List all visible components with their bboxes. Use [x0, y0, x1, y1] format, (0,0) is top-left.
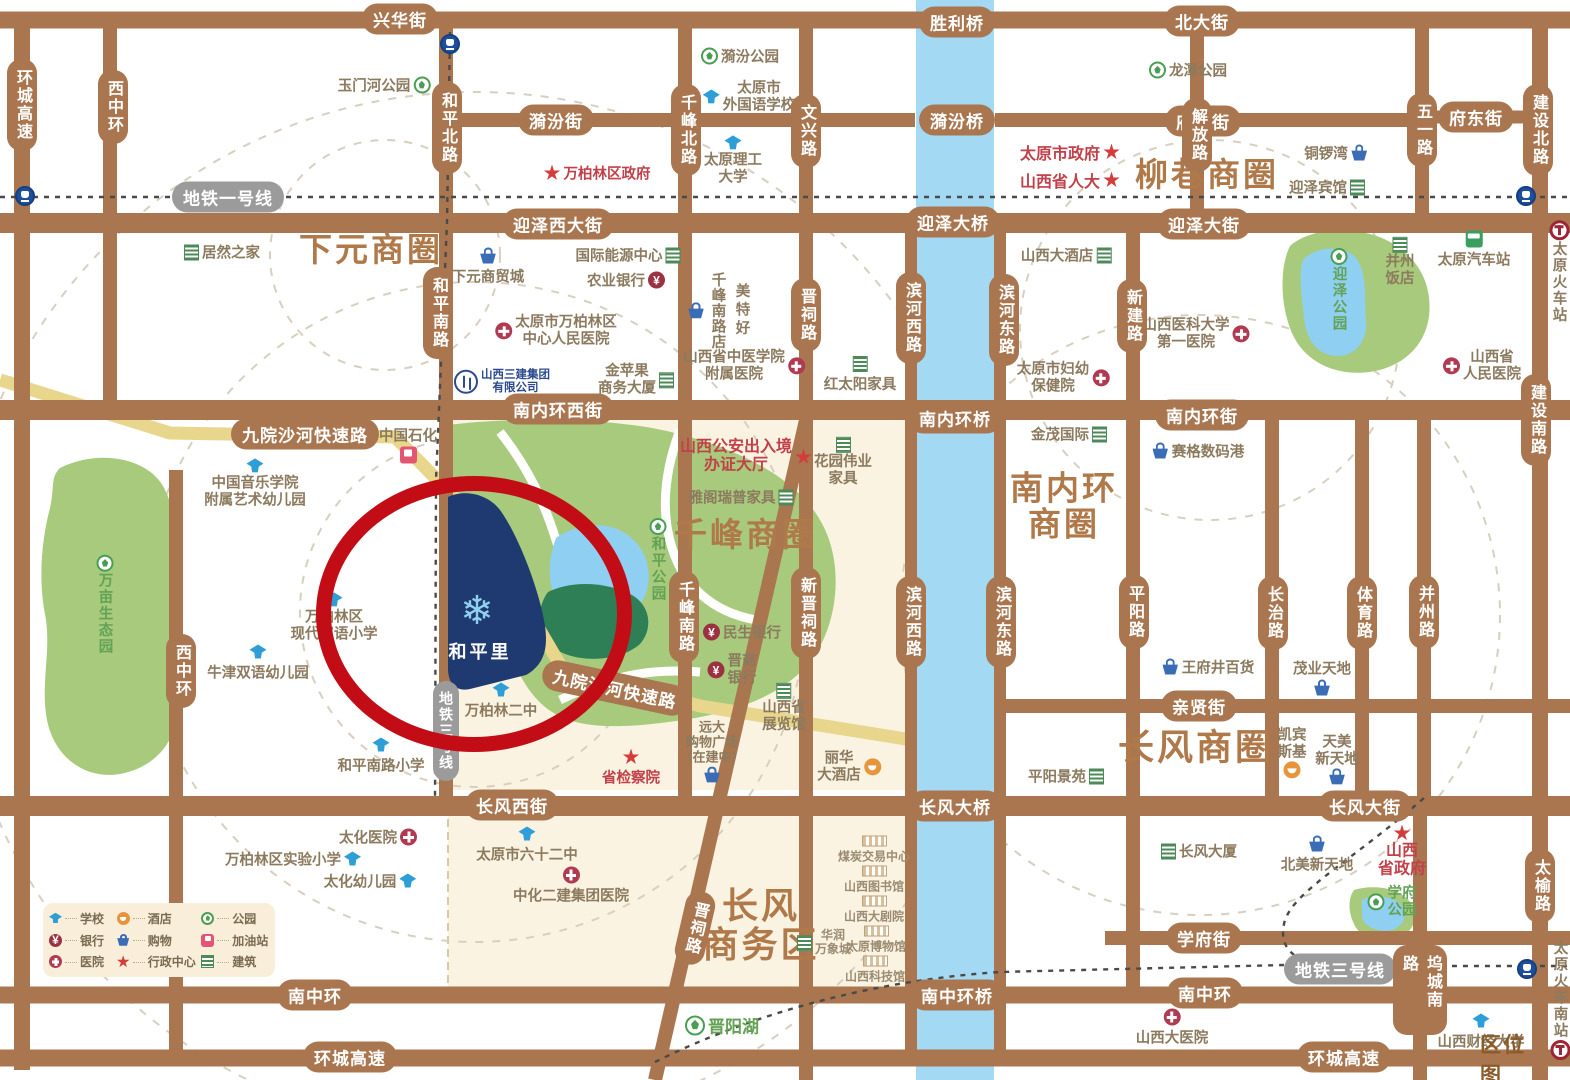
poi-label: 民生银行 — [723, 622, 781, 643]
road-label-beidajie: 北大街 — [1164, 6, 1240, 37]
poi-shanxi-science-museum: 山西科技馆 — [845, 956, 905, 985]
poi-sinopec: 中国石化 — [379, 425, 437, 464]
legend-dots — [65, 917, 77, 919]
poi-yingze-park: 迎泽公园 — [1329, 248, 1350, 332]
poi-label: 漪汾公园 — [721, 46, 779, 67]
poi-label: 金茂国际 — [1031, 424, 1089, 445]
poi-taiyuan-museum: 太原博物馆 — [846, 926, 906, 955]
poi-xuefu-park: 学府公园 — [1368, 885, 1417, 918]
poi-shanxi-sanjian: 山西三建集团有限公司 — [454, 369, 550, 395]
poi-wanbailin-exp-primary: 万柏林区实验小学 — [225, 849, 361, 870]
poi-shanxi-library: 山西图书馆 — [844, 866, 904, 895]
poi-jinshang-bank: 晋商银行 — [708, 653, 757, 686]
poi-label-line2: 家具 — [829, 471, 858, 487]
admin-star-icon — [623, 749, 640, 766]
poi-label: 山西大酒店 — [1021, 245, 1094, 266]
poi-label-line2: 现代双语小学 — [291, 626, 378, 642]
poi-jinyang-lake: 晋阳湖 — [685, 1013, 759, 1038]
poi-label-line2: 省政府 — [1378, 861, 1426, 878]
poi-label-line1: 山西省 — [1470, 349, 1514, 365]
admin-star-icon — [544, 165, 561, 182]
poi-abc-bank: 农业银行 — [587, 270, 665, 291]
poi-label-branch: 千峰南路店 — [708, 272, 729, 350]
poi-huayuan-furniture: 花园伟业家具 — [814, 437, 872, 487]
poi-label-line2: 附属医院 — [705, 366, 763, 382]
metro-line3-label-west: 地铁三号线 — [433, 681, 459, 781]
legend-item-bank: 银行 — [49, 932, 117, 949]
building-sketch-icon — [861, 896, 886, 907]
building-icon — [184, 244, 199, 260]
sanjian-logo-icon — [454, 370, 478, 394]
park-icon — [97, 555, 114, 572]
legend-dots — [133, 939, 145, 941]
road-label-qianfengbei: 千峰北路 — [671, 84, 701, 176]
building-icon — [659, 372, 674, 388]
building-icon — [1089, 768, 1104, 784]
poi-label-line1: 学府 — [1388, 885, 1417, 901]
poi-label: 太化幼儿园 — [324, 871, 397, 892]
poi-label-line2: 附属艺术幼儿园 — [204, 492, 306, 508]
fenhe-river — [916, 0, 994, 1080]
poi-taiyuan-bus-station: 太原汽车站 — [1438, 231, 1511, 270]
poi-tianmei-newworld: 天美新天地 — [1315, 734, 1359, 785]
poi-yifen-park: 漪汾公园 — [701, 46, 779, 67]
road-label-taiyu: 太榆路 — [1525, 849, 1555, 923]
poi-label: 山西大医院 — [1136, 1027, 1209, 1048]
park-icon — [413, 77, 430, 94]
poi-seg-digital-mall: 赛格数码港 — [1152, 441, 1245, 462]
bank-icon — [49, 934, 62, 947]
poi-wanbailin-government: 万柏林区政府 — [544, 163, 651, 184]
road-label-jiefang: 解放路 — [1182, 98, 1212, 172]
admin-star-icon — [117, 955, 130, 968]
school-icon — [344, 851, 361, 868]
hotel-icon — [117, 912, 130, 925]
metro-station-icon — [1516, 186, 1536, 206]
poi-taihua-hospital: 太化医院 — [339, 827, 417, 848]
poi-label: 玉门河公园 — [338, 75, 411, 96]
poi-taihua-kindergarten: 太化幼儿园 — [324, 871, 417, 892]
legend-item-shop: 购物 — [117, 932, 202, 949]
poi-label: 山西科技馆 — [845, 968, 905, 985]
poi-label: 太原火车南站 — [1550, 940, 1570, 1039]
poi-label-line1: 天美 — [1323, 734, 1352, 750]
poi-shanxi-dayiyuan: 山西大医院 — [1136, 1009, 1209, 1048]
building-sketch-icon — [861, 866, 886, 877]
legend-label: 公园 — [232, 910, 256, 927]
school-icon — [493, 682, 510, 699]
poi-label: 中化二建集团医院 — [513, 885, 629, 906]
hotel-icon — [1284, 762, 1301, 779]
railway-icon — [1549, 220, 1569, 240]
poi-label-brand: 美特好 — [732, 283, 753, 339]
poi-maoye-tiandi: 茂业天地 — [1293, 658, 1351, 697]
school-icon — [1473, 1013, 1490, 1030]
poi-label-line2: 商务大厦 — [598, 380, 656, 396]
poi-jinmao-international: 金茂国际 — [1031, 424, 1107, 445]
map-root: 兴华街 胜利桥 北大街 漪汾街 漪汾桥 府西街 府东街 迎泽西大街 迎泽大桥 迎… — [0, 0, 1570, 1080]
poi-label: 太化医院 — [339, 827, 397, 848]
poi-shanxi-exhibition-hall: 山西省展览馆 — [762, 683, 806, 733]
school-icon — [399, 873, 416, 890]
poi-label: 省检察院 — [602, 767, 660, 788]
park-icon — [1331, 248, 1348, 265]
road-label-ring-expwy-sw: 环城高速 — [303, 1042, 397, 1073]
poi-label-line3: （在建中） — [679, 749, 744, 764]
road-label-xinghua: 兴华街 — [362, 4, 438, 35]
shopping-icon — [1329, 769, 1346, 786]
shopping-icon — [1162, 659, 1179, 676]
poi-zhonghua-hospital: 中化二建集团医院 — [513, 867, 629, 906]
poi-label-line1: 山西医科大学 — [1143, 317, 1230, 333]
poi-bingzhou-hotel: 并州饭店 — [1386, 237, 1415, 287]
poi-label-line1: 晋商 — [728, 653, 757, 669]
building-icon — [1161, 843, 1176, 859]
poi-wangfujing: 王府井百货 — [1162, 657, 1255, 678]
shopping-icon — [1351, 145, 1368, 162]
road-label-xizhonghuan-n: 西中环 — [98, 70, 128, 144]
poi-label: 万柏林区实验小学 — [225, 849, 341, 870]
shopping-icon — [1152, 443, 1169, 460]
legend-dots — [65, 939, 77, 941]
building-sketch-icon — [862, 956, 887, 967]
bank-icon — [703, 624, 720, 641]
road-label-qinxian-st: 亲贤街 — [1161, 691, 1237, 722]
metro-line1-label: 地铁一号线 — [172, 182, 284, 213]
poi-yage-furniture: 雅阁瑞普家具 — [689, 487, 794, 508]
poi-yumenhe-park: 玉门河公园 — [338, 75, 431, 96]
school-icon — [519, 826, 536, 843]
poi-kempinski: 凯宾斯基 — [1278, 727, 1307, 778]
road-label-pingyang: 平阳路 — [1119, 575, 1149, 649]
hospital-icon — [1164, 1009, 1181, 1026]
poi-music-kindergarten: 中国音乐学院附属艺术幼儿园 — [204, 457, 306, 508]
legend-label: 学校 — [80, 910, 104, 927]
poi-label: 万柏林二中 — [465, 700, 538, 721]
road-label-yingze-west: 迎泽西大街 — [502, 209, 614, 240]
poi-shanxi-grand-hotel: 山西大酒店 — [1021, 245, 1112, 266]
building-icon — [836, 437, 851, 453]
road-label-changfeng-bridge: 长风大桥 — [908, 791, 1002, 822]
gas-station-icon — [400, 447, 417, 464]
poi-central-peoples-hospital: 太原市万柏林区中心人民医院 — [495, 314, 617, 347]
park-icon — [1149, 62, 1166, 79]
legend-item-gas: 加油站 — [201, 932, 269, 949]
road-label-hepingbei: 和平北路 — [432, 82, 462, 174]
poi-label-line1: 山西省中医学院 — [683, 349, 785, 365]
poi-changfeng-tower: 长风大厦 — [1161, 841, 1237, 862]
poi-longtan-park: 龙潭公园 — [1149, 60, 1227, 81]
road-label-xinjinci: 新晋祠路 — [791, 567, 821, 659]
school-icon — [247, 457, 264, 474]
poi-exit-entry-hall: 山西公安出入境办证大厅 — [680, 439, 812, 476]
poi-label: 农业银行 — [587, 270, 645, 291]
road-label-tiyu: 体育路 — [1347, 576, 1377, 650]
poi-label: 赛格数码港 — [1172, 441, 1245, 462]
poi-label: 茂业天地 — [1293, 658, 1351, 679]
hospital-icon — [1443, 358, 1460, 375]
poi-label: 山西大剧院 — [844, 908, 904, 925]
poi-label-line1: 山西省 — [762, 700, 806, 716]
road-label-yifen-bridge: 漪汾桥 — [919, 105, 995, 136]
poi-label-line2: 新天地 — [1315, 751, 1359, 767]
poi-label-line2: 中心人民医院 — [523, 331, 610, 347]
legend-dots — [217, 917, 229, 919]
poi-label: 万柏林区政府 — [564, 163, 651, 184]
building-icon — [779, 489, 794, 505]
poi-goldapple-tower: 金苹果商务大厦 — [598, 363, 674, 396]
admin-star-icon — [1103, 172, 1120, 189]
poi-label: 居然之家 — [202, 242, 260, 263]
road-label-binhedong-s: 滨河东路 — [986, 576, 1016, 668]
building-icon — [1092, 426, 1107, 442]
poi-label: 下元商贸城 — [452, 266, 525, 287]
road-label-changfeng-st: 长风大街 — [1318, 791, 1412, 822]
building-icon — [1393, 237, 1408, 253]
legend-box: 学校 酒店 公园 银行 购物 加油站 医院 行政中心 建筑 — [43, 903, 275, 977]
project-logo-snowflake-icon: ❄ — [460, 588, 494, 634]
admin-star-icon — [795, 449, 812, 466]
poi-label-line2: 银行 — [728, 670, 757, 686]
poi-label: 平阳景苑 — [1028, 766, 1086, 787]
poi-label: 万亩生态园 — [95, 573, 116, 656]
road-label-yingze-bridge: 迎泽大桥 — [906, 207, 1000, 238]
legend-item-admin: 行政中心 — [117, 953, 202, 970]
park-icon — [1368, 894, 1385, 911]
school-icon — [725, 134, 742, 151]
school-icon — [49, 912, 62, 925]
poi-label-line1: 华润 — [821, 928, 845, 942]
poi-shanxi-peoples-congress: 山西省人大 — [1020, 168, 1120, 192]
shopping-icon — [1309, 836, 1326, 853]
poi-hepingnanlu-primary: 和平南路小学 — [338, 737, 425, 776]
district-nanneihuan: 南内环商圈 — [1010, 470, 1118, 541]
poi-taiyuan-no62-school: 太原市六十二中 — [476, 826, 578, 865]
road-label-fudong-st: 府东街 — [1438, 102, 1514, 133]
poi-label-line2: 人民医院 — [1463, 366, 1521, 382]
road-label-xinjian: 新建路 — [1117, 279, 1147, 353]
poi-fuyou-hospital: 太原市妇幼保健院 — [1017, 361, 1110, 394]
legend-dots — [217, 961, 229, 963]
project-name-label: 和平里 — [449, 638, 512, 664]
legend-item-hospital: 医院 — [49, 953, 117, 970]
metro-station-icon — [15, 186, 35, 206]
hospital-icon — [400, 829, 417, 846]
poi-lihua-hotel: 丽华大酒店 — [817, 750, 881, 783]
map-corner-tag: 区位图 — [1480, 1029, 1540, 1080]
bank-icon — [708, 662, 725, 679]
poi-label: 太原火车站 — [1549, 241, 1570, 324]
building-icon — [1350, 179, 1365, 195]
road-label-nanneihuan-west: 南内环西街 — [502, 394, 614, 425]
poi-label-line2: 办证大厅 — [704, 457, 768, 474]
hospital-icon — [1233, 326, 1250, 343]
road-label-nanneihuan-st: 南内环街 — [1155, 400, 1249, 431]
district-xiayuan: 下元商圈 — [299, 232, 443, 268]
legend-dots — [65, 961, 77, 963]
hotel-icon — [864, 759, 881, 776]
shopping-icon — [117, 934, 130, 947]
road-label-wenxing: 文兴路 — [791, 94, 821, 168]
poi-label-line1: 太原市万柏林区 — [515, 314, 617, 330]
poi-taiyuan-government: 太原市政府 — [1020, 140, 1120, 164]
road-label-ring-expwy-w: 环城高速 — [7, 59, 37, 151]
school-icon — [373, 737, 390, 754]
poi-energy-center: 国际能源中心 — [576, 245, 681, 266]
poi-wanbailin-no2-school: 万柏林二中 — [465, 682, 538, 721]
road-label-ring-expwy-se: 环城高速 — [1297, 1042, 1391, 1073]
road-label-bingzhou: 并州路 — [1409, 575, 1439, 649]
poi-label-line1: 远大 — [699, 720, 725, 735]
road-label-nanzhonghuan-east: 南中环 — [1167, 978, 1243, 1009]
poi-juranzhijia: 居然之家 — [184, 242, 260, 263]
road-label-jianshenan: 建设南路 — [1521, 374, 1551, 466]
poi-label-line1: 并州 — [1386, 254, 1415, 270]
railway-icon — [1550, 1040, 1570, 1060]
poi-label: 迎泽宾馆 — [1289, 177, 1347, 198]
road-label-hepingnan: 和平南路 — [423, 267, 453, 359]
poi-redsun-furniture: 红太阳家具 — [824, 356, 897, 394]
poi-label-line2: 饭店 — [1386, 271, 1415, 287]
poi-label: 太原博物馆 — [846, 938, 906, 955]
poi-label-line2: 购物广场 — [686, 735, 738, 750]
poi-pingyang-jingyuan: 平阳景苑 — [1028, 766, 1104, 787]
poi-label-line1: 太原市 — [737, 80, 781, 96]
poi-shanxi-peoples-hospital: 山西省人民医院 — [1443, 349, 1521, 382]
poi-shanxi-grand-theatre: 山西大剧院 — [844, 896, 904, 925]
poi-modern-bilingual-primary: 万柏林区现代双语小学 — [291, 591, 378, 642]
building-icon — [1096, 247, 1111, 263]
poi-shanxi-government: 山西省政府 — [1378, 825, 1426, 880]
poi-label-line1: 丽华 — [825, 750, 854, 766]
poi-label: 龙潭公园 — [1169, 60, 1227, 81]
poi-label: 太原市六十二中 — [476, 844, 578, 865]
shopping-icon — [688, 303, 705, 320]
road-label-nanzhonghuan-west: 南中环 — [277, 980, 353, 1011]
road-label-qianfengnan: 千峰南路 — [669, 571, 699, 663]
hospital-icon — [563, 867, 580, 884]
poi-minsheng-bank: 民生银行 — [703, 622, 781, 643]
poi-taiyuan-railway-station: 太原火车站 — [1549, 220, 1570, 324]
building-icon — [201, 955, 214, 968]
road-label-binhedong-n: 滨河东路 — [989, 274, 1019, 366]
poi-medical-univ-hospital: 山西医科大学第一医院 — [1143, 317, 1250, 350]
poi-label: 长风大厦 — [1179, 841, 1237, 862]
park-icon — [701, 48, 718, 65]
road-label-nanzhonghuan-bridge: 南中环桥 — [910, 980, 1004, 1011]
poi-taiyuan-south-station: 太原火车南站 — [1550, 940, 1570, 1060]
road-label-binhexi-s: 滨河西路 — [896, 576, 926, 668]
poi-label-line1: 太原市妇幼 — [1017, 361, 1090, 377]
road-label-nanneihuan-bridge: 南内环桥 — [908, 403, 1002, 434]
park-icon — [685, 1015, 705, 1035]
poi-label: 雅阁瑞普家具 — [689, 487, 776, 508]
poi-yuanda-plaza: 远大购物广场（在建中） — [679, 721, 744, 784]
metro-station-icon — [440, 34, 460, 54]
hospital-icon — [1092, 370, 1109, 387]
legend-label: 酒店 — [148, 910, 172, 927]
road-label-xuefu-st: 学府街 — [1166, 923, 1242, 954]
legend-dots — [217, 939, 229, 941]
gas-station-icon — [201, 934, 214, 947]
poi-wanmu-eco-park: 万亩生态园 — [95, 555, 116, 656]
poi-label: 铜锣湾 — [1304, 143, 1348, 164]
legend-label: 银行 — [80, 932, 104, 949]
poi-label-line1: 中国音乐学院 — [212, 475, 299, 491]
school-icon — [326, 591, 343, 608]
road-label-changzhi: 长治路 — [1258, 576, 1288, 650]
poi-label-line2: 第一医院 — [1157, 334, 1215, 350]
road-label-shengli-bridge: 胜利桥 — [919, 7, 995, 38]
poi-beimei-newworld: 北美新天地 — [1281, 836, 1354, 875]
road-label-yingze-st: 迎泽大街 — [1157, 209, 1251, 240]
building-icon — [853, 356, 868, 372]
road-label-xizhonghuan-s: 西中环 — [166, 634, 196, 708]
poi-label-line1: 凯宾 — [1278, 727, 1307, 743]
hospital-icon — [495, 323, 512, 340]
poi-coal-trade-center: 煤炭交易中心 — [838, 836, 910, 865]
legend-item-hotel: 酒店 — [117, 910, 202, 927]
building-icon — [797, 935, 812, 951]
building-sketch-icon — [861, 836, 886, 847]
poi-label: 晋阳湖 — [708, 1013, 759, 1038]
poi-label: 山西省人大 — [1020, 168, 1100, 192]
poi-label-line2: 大学 — [719, 169, 748, 185]
admin-star-icon — [1103, 144, 1120, 161]
poi-label-line1: 山西 — [1386, 843, 1418, 860]
district-nanneihuan-line1: 南内环 — [1010, 470, 1118, 506]
road-label-yifen-st: 漪汾街 — [518, 105, 594, 136]
poi-label: 迎泽公园 — [1329, 266, 1350, 332]
hospital-icon — [788, 358, 805, 375]
hospital-icon — [49, 955, 62, 968]
school-icon — [250, 644, 267, 661]
poi-label: 太原汽车站 — [1438, 249, 1511, 270]
poi-label: 国际能源中心 — [576, 245, 663, 266]
road-label-jiuyuan-expwy-n: 九院沙河快速路 — [231, 419, 379, 450]
poi-taiyuan-univ-of-tech: 太原理工大学 — [704, 134, 762, 185]
poi-label-line2: 公园 — [1388, 902, 1417, 918]
poi-label: 中国石化 — [379, 425, 437, 446]
bank-icon — [648, 272, 665, 289]
poi-tcm-hospital: 山西省中医学院附属医院 — [683, 349, 805, 382]
poi-mixc: 华润万象城 — [797, 929, 851, 957]
poi-label-line2: 保健院 — [1031, 378, 1075, 394]
school-icon — [703, 89, 720, 106]
legend-dots — [133, 917, 145, 919]
legend-label: 行政中心 — [148, 953, 196, 970]
poi-label: 红太阳家具 — [824, 373, 897, 394]
metro-station-icon — [1517, 959, 1537, 979]
poi-label: 煤炭交易中心 — [838, 848, 910, 865]
poi-label: 和平南路小学 — [338, 755, 425, 776]
poi-label: 北美新天地 — [1281, 854, 1354, 875]
poi-tongluowan: 铜锣湾 — [1304, 143, 1368, 164]
legend-label: 医院 — [80, 953, 104, 970]
district-changfeng-biz-line1: 长风 — [702, 887, 819, 926]
poi-label-line2: 外国语学校 — [723, 97, 796, 113]
metro-line3-label-east: 地铁三号线 — [1284, 954, 1396, 985]
poi-xiayuan-mall: 下元商贸城 — [452, 248, 525, 287]
district-changfeng: 长风商圈 — [1118, 729, 1274, 768]
bus-icon — [1466, 231, 1483, 248]
road-label-jianshebei: 建设北路 — [1523, 84, 1553, 176]
building-sketch-icon — [863, 926, 888, 937]
legend-dots — [133, 961, 145, 963]
building-icon — [666, 247, 681, 263]
poi-foreign-language-school: 太原市外国语学校 — [703, 80, 796, 113]
legend-label: 购物 — [148, 932, 172, 949]
